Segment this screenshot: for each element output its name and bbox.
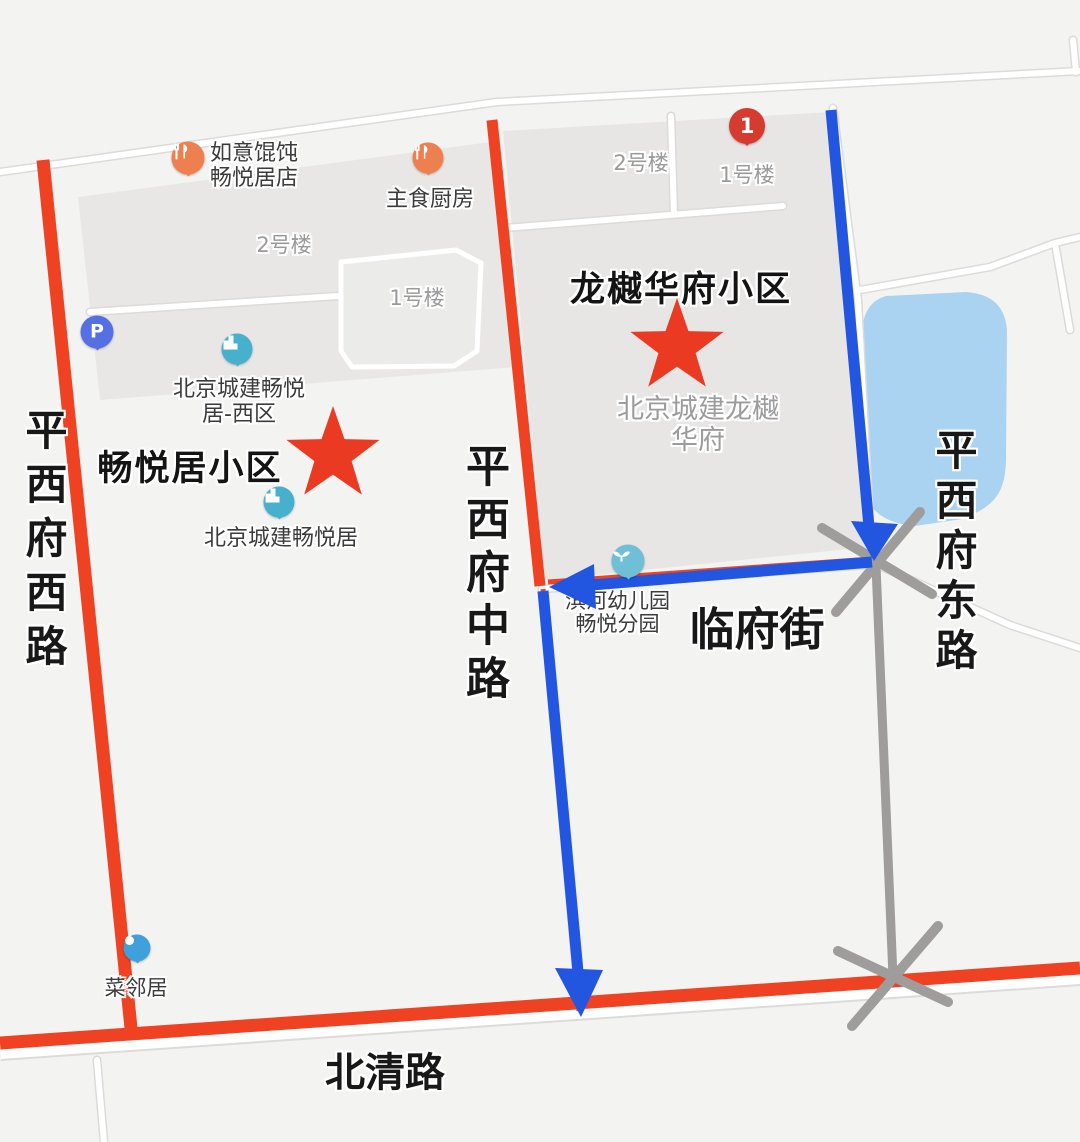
- dot-icon: [124, 935, 136, 947]
- road-label-pingxifu-east: 平西府东路: [932, 428, 974, 678]
- numbered-pin-1[interactable]: 1: [729, 108, 765, 144]
- area-label-longyue-dev: 北京城建龙樾 华府: [610, 394, 786, 456]
- poi-label-kindergarten[interactable]: 滨河幼儿园 畅悦分园: [565, 590, 670, 636]
- map-canvas[interactable]: 平西府西路 平西府中路 平西府东路 北清路 临府街 畅悦居小区 龙樾华府小区 2…: [0, 0, 1080, 1142]
- poi-pin-kindergarten[interactable]: [612, 545, 645, 578]
- poi-pin-cailinju[interactable]: [124, 935, 151, 962]
- poi-pin-ruyi[interactable]: [172, 142, 205, 175]
- parking-icon: P: [90, 323, 104, 342]
- poi-label-ruyi[interactable]: 如意馄饨 畅悦居店: [210, 141, 298, 191]
- community-label-longyue: 龙樾华府小区: [570, 261, 792, 312]
- building-label-west-2: 2号楼: [256, 229, 311, 259]
- poi-pin-parking[interactable]: P: [81, 316, 114, 349]
- poi-label-changyueju[interactable]: 北京城建畅悦居: [204, 526, 358, 551]
- poi-label-xiqu[interactable]: 北京城建畅悦 居-西区: [173, 377, 305, 427]
- poi-pin-zhushi[interactable]: [413, 143, 444, 174]
- building-label-east-1: 1号楼: [719, 159, 774, 189]
- building-icon: [222, 334, 240, 352]
- community-label-changyueju: 畅悦居小区: [97, 440, 282, 491]
- road-label-beiqing: 北清路: [325, 1040, 445, 1098]
- labels-layer: 平西府西路 平西府中路 平西府东路 北清路 临府街 畅悦居小区 龙樾华府小区 2…: [0, 0, 1080, 1142]
- building-label-east-2: 2号楼: [613, 147, 668, 177]
- poi-label-xiqu-line1: 北京城建畅悦: [173, 377, 305, 402]
- restaurant-icon: [413, 143, 432, 162]
- poi-label-zhushi[interactable]: 主食厨房: [386, 187, 474, 212]
- poi-label-cailinju[interactable]: 菜邻居: [105, 976, 168, 1001]
- poi-label-xiqu-line2: 居-西区: [173, 402, 305, 427]
- poi-pin-xiqu[interactable]: [222, 334, 253, 365]
- poi-label-ruyi-line2: 畅悦居店: [210, 166, 298, 191]
- poi-pin-changyueju[interactable]: [264, 487, 295, 518]
- building-icon: [264, 487, 282, 505]
- road-label-linfu: 临府街: [689, 593, 824, 658]
- numbered-pin-1-label: 1: [740, 114, 755, 138]
- poi-label-kindergarten-line1: 滨河幼儿园: [565, 590, 670, 613]
- area-label-longyue-dev-line1: 北京城建龙樾: [610, 394, 786, 425]
- building-label-west-1: 1号楼: [389, 282, 444, 312]
- road-label-pingxifu-middle: 平西府中路: [461, 443, 505, 708]
- road-label-pingxifu-west: 平西府西路: [22, 408, 64, 678]
- sprout-icon: [612, 545, 632, 565]
- area-label-longyue-dev-line2: 华府: [610, 425, 786, 456]
- restaurant-icon: [172, 142, 192, 162]
- poi-label-ruyi-line1: 如意馄饨: [210, 141, 298, 166]
- poi-label-kindergarten-line2: 畅悦分园: [565, 613, 670, 636]
